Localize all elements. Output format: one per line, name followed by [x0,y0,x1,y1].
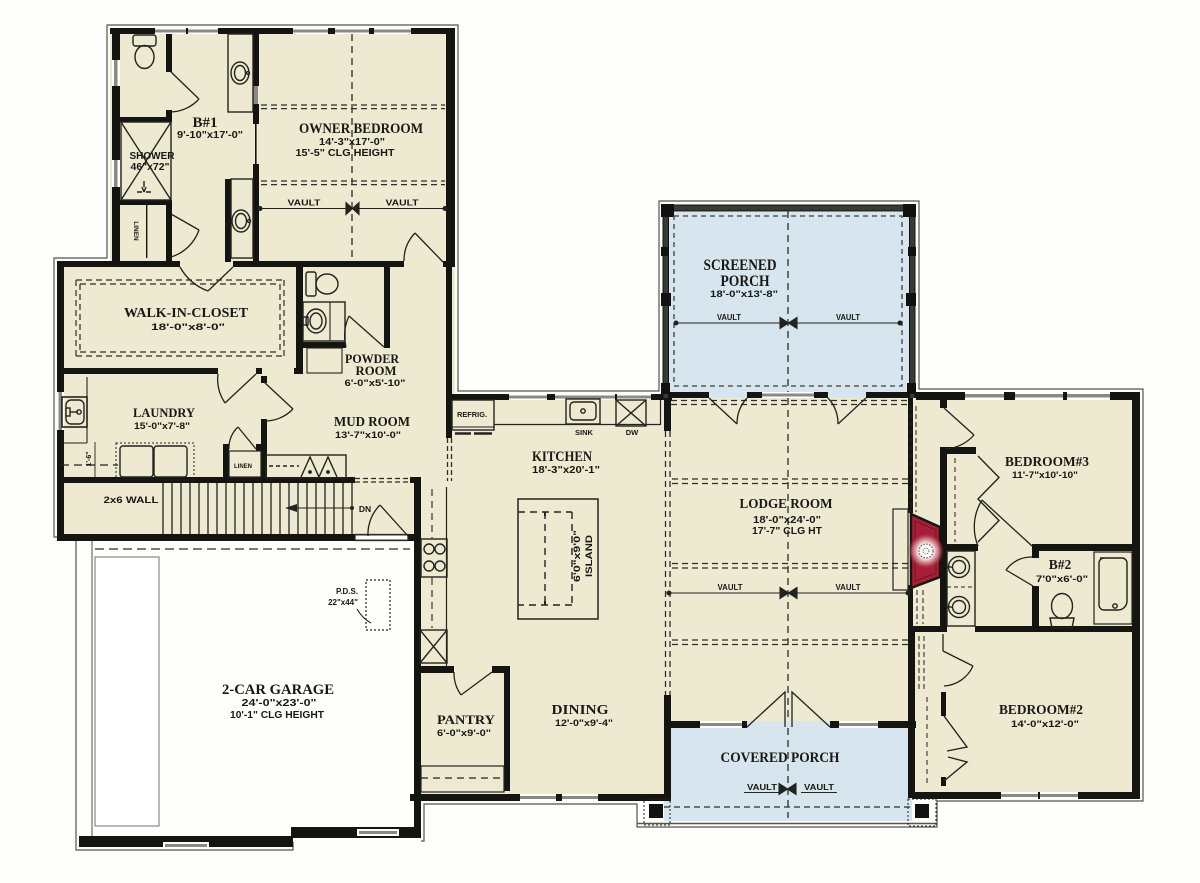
svg-text:2x6 WALL: 2x6 WALL [104,495,159,506]
svg-text:24'-0"x23'-0": 24'-0"x23'-0" [242,698,317,709]
svg-text:18'-0"x24'-0": 18'-0"x24'-0" [753,515,821,526]
svg-text:DW: DW [626,428,639,437]
svg-text:VAULT: VAULT [836,582,862,592]
svg-text:14'-3"x17'-0": 14'-3"x17'-0" [319,137,385,148]
svg-text:9'-10"x17'-0": 9'-10"x17'-0" [177,130,243,141]
svg-text:LODGE ROOM: LODGE ROOM [740,497,833,512]
svg-text:6'-0"x9'-0": 6'-0"x9'-0" [437,728,491,738]
svg-text:REFRIG.: REFRIG. [457,412,487,419]
svg-text:6'-0"x5'-10": 6'-0"x5'-10" [345,378,406,389]
svg-text:VAULT: VAULT [804,782,835,792]
svg-text:18'-0"x13'-8": 18'-0"x13'-8" [710,289,778,300]
svg-text:MUD ROOM: MUD ROOM [334,414,410,429]
svg-text:P.D.S.: P.D.S. [336,587,358,596]
svg-text:7'0"x6'-0": 7'0"x6'-0" [1036,574,1088,585]
svg-text:PORCH: PORCH [721,273,770,290]
svg-text:BEDROOM#2: BEDROOM#2 [999,702,1083,717]
svg-text:B#2: B#2 [1049,557,1072,572]
svg-text:13'-7"x10'-0": 13'-7"x10'-0" [335,430,401,441]
svg-text:VAULT: VAULT [288,198,322,208]
svg-text:SCREENED: SCREENED [704,257,777,274]
svg-text:17'-7" CLG HT: 17'-7" CLG HT [752,526,822,537]
svg-text:2-CAR GARAGE: 2-CAR GARAGE [222,682,334,698]
svg-text:22"x44": 22"x44" [328,598,358,607]
svg-text:18'-0"x8'-0": 18'-0"x8'-0" [151,322,225,333]
svg-text:COVERED PORCH: COVERED PORCH [721,750,840,766]
svg-text:DN: DN [359,504,371,514]
svg-text:BEDROOM#3: BEDROOM#3 [1005,454,1089,469]
svg-text:VAULT: VAULT [386,198,420,208]
svg-text:ISLAND: ISLAND [584,535,595,577]
svg-text:PANTRY: PANTRY [437,713,495,727]
svg-text:1'-6": 1'-6" [86,451,93,466]
svg-text:15'-5" CLG HEIGHT: 15'-5" CLG HEIGHT [296,148,395,159]
svg-text:ROOM: ROOM [356,363,397,378]
svg-text:10'-1" CLG HEIGHT: 10'-1" CLG HEIGHT [230,710,324,721]
svg-text:6'0"x9'0": 6'0"x9'0" [572,530,583,582]
svg-text:11'-7"x10'-10": 11'-7"x10'-10" [1012,470,1078,481]
svg-text:14'-0"x12'-0": 14'-0"x12'-0" [1011,719,1079,730]
svg-text:DINING: DINING [552,702,610,717]
svg-text:LAUNDRY: LAUNDRY [133,405,196,420]
svg-text:B#1: B#1 [192,115,217,131]
svg-text:OWNER BEDROOM: OWNER BEDROOM [299,121,423,137]
svg-text:WALK-IN-CLOSET: WALK-IN-CLOSET [124,306,249,321]
svg-text:LINEN: LINEN [234,464,252,470]
svg-text:SINK: SINK [575,428,594,437]
svg-text:VAULT: VAULT [717,312,742,322]
svg-text:46"x72": 46"x72" [131,161,170,173]
svg-text:12'-0"x9'-4": 12'-0"x9'-4" [555,718,613,729]
svg-text:VAULT: VAULT [747,782,778,792]
svg-text:VAULT: VAULT [836,312,861,322]
svg-text:KITCHEN: KITCHEN [532,449,592,465]
svg-text:LINEN: LINEN [132,221,139,241]
svg-text:18'-3"x20'-1": 18'-3"x20'-1" [532,465,600,476]
svg-text:VAULT: VAULT [718,582,744,592]
svg-text:15'-0"x7'-8": 15'-0"x7'-8" [134,421,190,432]
